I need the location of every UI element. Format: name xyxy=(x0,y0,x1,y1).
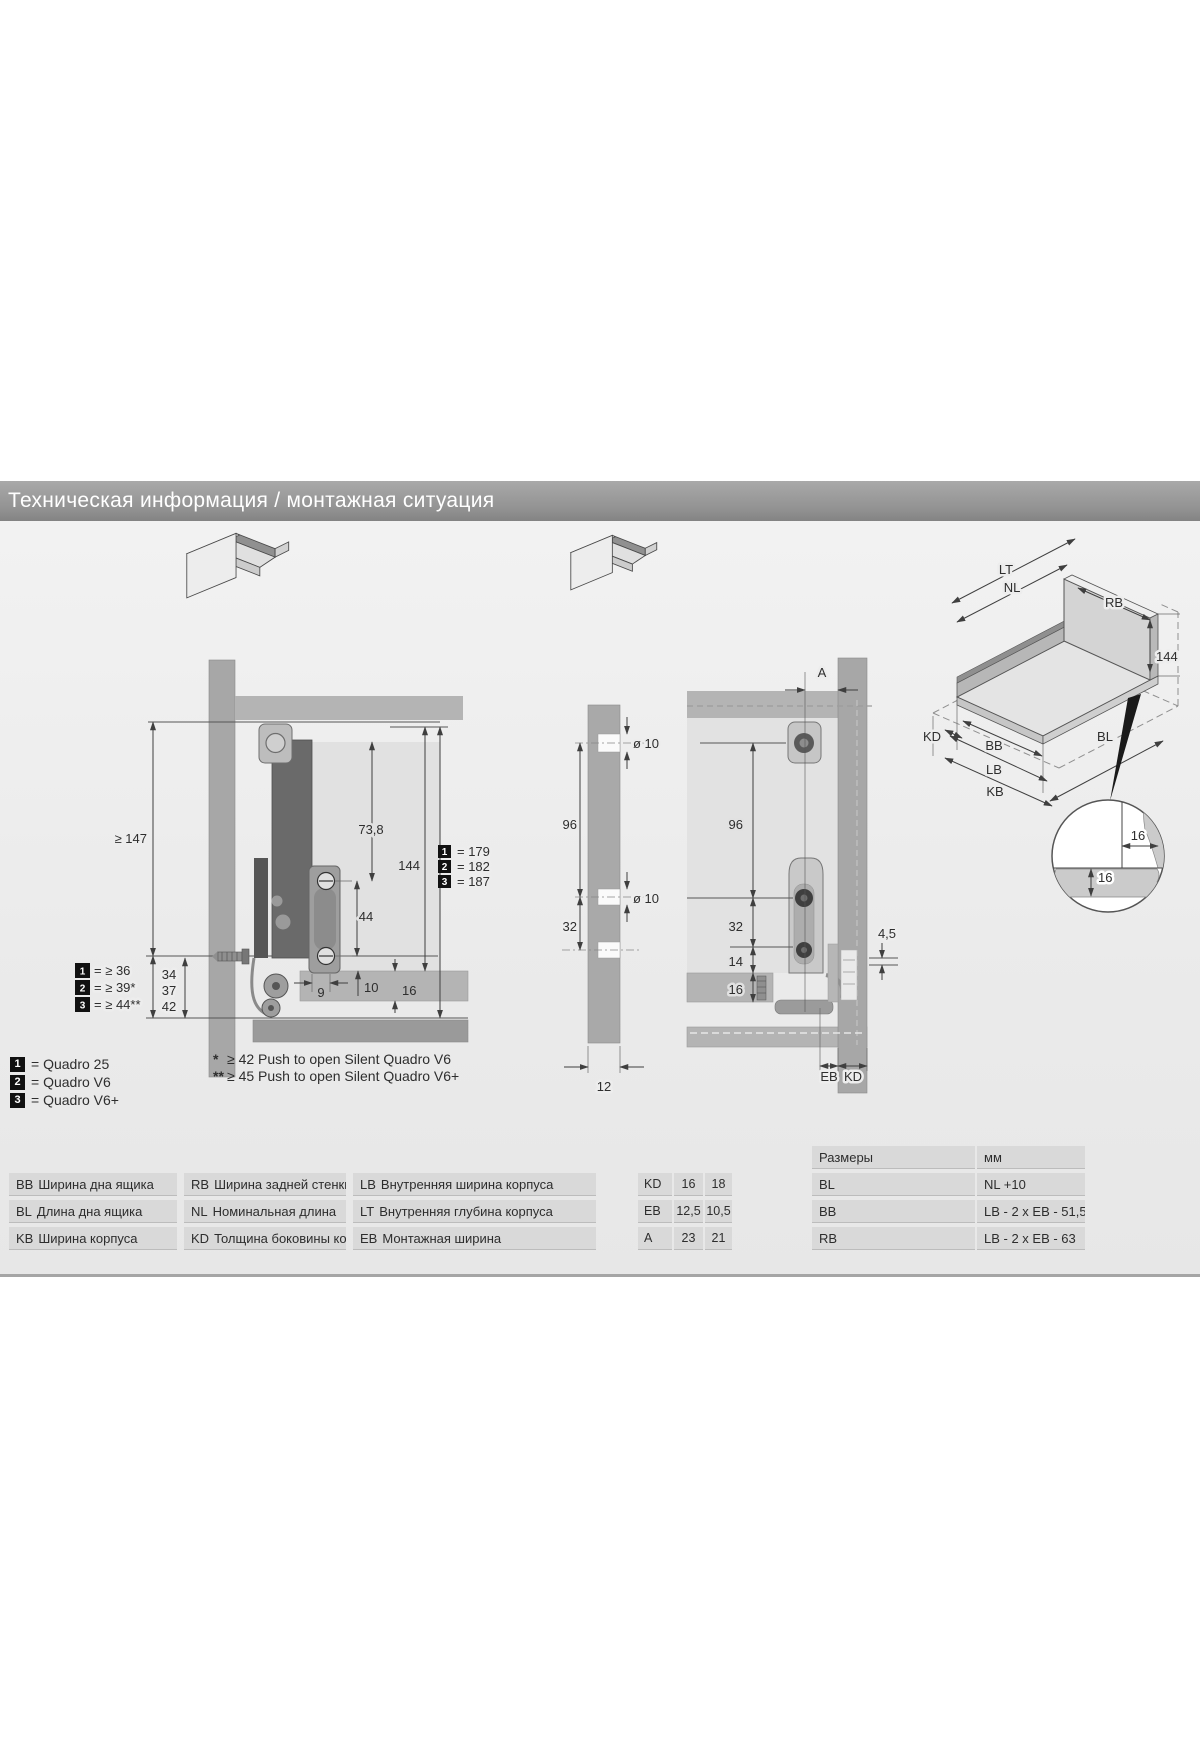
dim-144: 144 xyxy=(398,858,420,873)
dim-cell: LB - 2 x EB - 63 xyxy=(977,1227,1085,1250)
dim-16: 16 xyxy=(729,982,743,997)
glossary-cell: RBШирина задней стенки xyxy=(184,1173,346,1196)
term-text: Внутренняя ширина корпуса xyxy=(381,1177,553,1192)
footnotes: * ≥ 42 Push to open Silent Quadro V6 ** … xyxy=(213,1051,459,1085)
dim-96: 96 xyxy=(563,817,577,832)
value-cell: 18 xyxy=(705,1173,732,1196)
term-text: Номинальная длина xyxy=(213,1204,337,1219)
drawer-box-icon xyxy=(565,524,663,602)
footnote: ** ≥ 45 Push to open Silent Quadro V6+ xyxy=(213,1068,459,1085)
label-bb: BB xyxy=(985,738,1002,753)
legend-label: = Quadro V6+ xyxy=(31,1092,119,1108)
glossary-cell: NLНоминальная длина xyxy=(184,1200,346,1223)
glossary-cell: EBМонтажная ширина xyxy=(353,1227,596,1250)
dim-32: 32 xyxy=(563,919,577,934)
value-cell: KD xyxy=(638,1173,672,1196)
dim-44: 44 xyxy=(359,909,373,924)
min-value-2: 37 xyxy=(162,983,176,998)
dim-96: 96 xyxy=(729,817,743,832)
value-cell: 16 xyxy=(674,1173,703,1196)
min-depth-legend: 1 = ≥ 36 2 = ≥ 39* 3 = ≥ 44** xyxy=(75,963,141,1012)
label-lt: LT xyxy=(999,562,1013,577)
min-value-3: 42 xyxy=(162,999,176,1014)
legend-num: 3 xyxy=(442,877,448,888)
label-eb: EB xyxy=(820,1069,837,1084)
isometric-drawing: LT NL RB 144 KD BB LB KB BL 16 16 xyxy=(830,520,1200,920)
product-legend: 1 = Quadro 25 2 = Quadro V6 3 = Quadro V… xyxy=(10,1055,119,1109)
legend-label: = ≥ 39* xyxy=(94,980,135,995)
dim-4-5: 4,5 xyxy=(878,926,896,941)
legend-num: 2 xyxy=(442,862,448,873)
dim-cell: BB xyxy=(812,1200,975,1223)
glossary-cell: LBВнутренняя ширина корпуса xyxy=(353,1173,596,1196)
dim-16: 16 xyxy=(402,983,416,998)
values-table: KD 16 18 EB 12,5 10,5 A 23 21 xyxy=(638,1173,732,1250)
footnote-marker: ** xyxy=(213,1068,227,1084)
legend-label: = Quadro 25 xyxy=(31,1056,109,1072)
label-bl: BL xyxy=(1097,729,1113,744)
dim-cell: NL +10 xyxy=(977,1173,1085,1196)
label-kd: KD xyxy=(844,1069,862,1084)
dimensions-table: Размеры мм BL NL +10 BB LB - 2 x EB - 51… xyxy=(812,1146,1085,1250)
footnote-text: ≥ 42 Push to open Silent Quadro V6 xyxy=(227,1051,451,1067)
num-badge: 2 xyxy=(10,1075,25,1090)
legend-label: = Quadro V6 xyxy=(31,1074,111,1090)
min-value-1: 34 xyxy=(162,967,176,982)
term-code: LT xyxy=(360,1204,374,1219)
label-kd: KD xyxy=(923,729,941,744)
footnote-text: ≥ 45 Push to open Silent Quadro V6+ xyxy=(227,1068,459,1084)
dim-14: 14 xyxy=(729,954,743,969)
term-text: Длина дна ящика xyxy=(37,1204,142,1219)
legend-label: = 182 xyxy=(457,859,490,874)
label-rb: RB xyxy=(1105,595,1123,610)
legend-label: = 179 xyxy=(457,844,490,859)
value-cell: A xyxy=(638,1227,672,1250)
legend-row: 2 = Quadro V6 xyxy=(10,1073,119,1091)
legend-num: 2 xyxy=(80,984,86,995)
legend-num: 3 xyxy=(80,1001,86,1012)
legend-label: = ≥ 44** xyxy=(94,997,141,1012)
dim-9: 9 xyxy=(317,985,324,1000)
term-text: Ширина дна ящика xyxy=(38,1177,154,1192)
label-kb: KB xyxy=(986,784,1003,799)
dim-cell: BL xyxy=(812,1173,975,1196)
glossary-cell: KBШирина корпуса xyxy=(9,1227,177,1250)
term-code: NL xyxy=(191,1204,208,1219)
total-height-legend: 1 = 179 2 = 182 3 = 187 xyxy=(438,844,490,889)
dim-12: 12 xyxy=(597,1079,611,1094)
term-code: BB xyxy=(16,1177,33,1192)
term-code: KB xyxy=(16,1231,33,1246)
legend-num: 1 xyxy=(80,967,86,978)
side-section-drawing: ≥ 147 73,8 144 44 9 10 16 34 37 42 1 = ≥… xyxy=(55,585,500,1055)
dim-header: мм xyxy=(977,1146,1085,1169)
term-code: LB xyxy=(360,1177,376,1192)
dim-min-height: ≥ 147 xyxy=(115,831,147,846)
dim-cell: RB xyxy=(812,1227,975,1250)
value-cell: 23 xyxy=(674,1227,703,1250)
term-text: Толщина боковины корпуса xyxy=(214,1231,346,1246)
legend-label: = ≥ 36 xyxy=(94,963,130,978)
legend-label: = 187 xyxy=(457,874,490,889)
dim-73-8: 73,8 xyxy=(358,822,383,837)
term-code: BL xyxy=(16,1204,32,1219)
glossary-table: BBШирина дна ящика RBШирина задней стенк… xyxy=(9,1173,596,1250)
glossary-cell: BBШирина дна ящика xyxy=(9,1173,177,1196)
term-text: Внутренняя глубина корпуса xyxy=(379,1204,553,1219)
dim-144: 144 xyxy=(1156,649,1178,664)
num-badge: 1 xyxy=(10,1057,25,1072)
glossary-cell: LTВнутренняя глубина корпуса xyxy=(353,1200,596,1223)
footnote: * ≥ 42 Push to open Silent Quadro V6 xyxy=(213,1051,459,1068)
footnote-marker: * xyxy=(213,1051,227,1067)
detail-dim-16-v: 16 xyxy=(1098,870,1112,885)
glossary-cell: BLДлина дна ящика xyxy=(9,1200,177,1223)
legend-row: 3 = Quadro V6+ xyxy=(10,1091,119,1109)
detail-dim-16-h: 16 xyxy=(1131,828,1145,843)
value-cell: 21 xyxy=(705,1227,732,1250)
page-title: Техническая информация / монтажная ситуа… xyxy=(0,489,494,513)
glossary-cell: KDТолщина боковины корпуса xyxy=(184,1227,346,1250)
term-text: Ширина корпуса xyxy=(38,1231,137,1246)
term-code: RB xyxy=(191,1177,209,1192)
dim-32: 32 xyxy=(729,919,743,934)
value-cell: EB xyxy=(638,1200,672,1223)
dim-header: Размеры xyxy=(812,1146,975,1169)
legend-row: 1 = Quadro 25 xyxy=(10,1055,119,1073)
value-cell: 10,5 xyxy=(705,1200,732,1223)
dim-a: A xyxy=(818,665,827,680)
dim-10: 10 xyxy=(364,980,378,995)
num-badge: 3 xyxy=(10,1093,25,1108)
legend-num: 1 xyxy=(442,847,448,858)
panel xyxy=(562,705,650,1043)
page: Техническая информация / монтажная ситуа… xyxy=(0,0,1200,1760)
dim-cell: LB - 2 x EB - 51,5 xyxy=(977,1200,1085,1223)
value-cell: 12,5 xyxy=(674,1200,703,1223)
section-title-bar: Техническая информация / монтажная ситуа… xyxy=(0,481,1200,521)
term-code: EB xyxy=(360,1231,377,1246)
term-code: KD xyxy=(191,1231,209,1246)
term-text: Монтажная ширина xyxy=(382,1231,501,1246)
label-nl: NL xyxy=(1004,580,1021,595)
label-lb: LB xyxy=(986,762,1002,777)
term-text: Ширина задней стенки xyxy=(214,1177,346,1192)
